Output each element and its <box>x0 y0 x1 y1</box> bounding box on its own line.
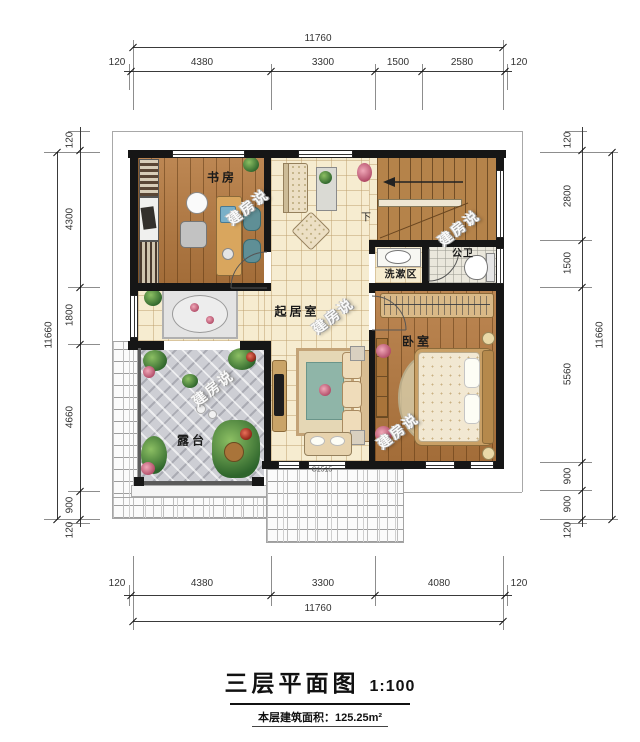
title-underline <box>230 703 410 705</box>
dim-text: 2800 <box>563 185 574 207</box>
ext-line <box>68 287 100 288</box>
dim-text: 900 <box>65 497 76 514</box>
stair-arrow-head <box>383 177 395 187</box>
room-label-living: 起居室 <box>274 303 319 320</box>
room-label-study: 书房 <box>207 169 237 186</box>
dim-line-bottom-total <box>133 621 503 622</box>
dim-line-left-segments <box>80 127 81 527</box>
stair-down-label: 下 <box>361 209 371 224</box>
dim-text: 11660 <box>44 321 55 348</box>
ext-line <box>129 64 130 90</box>
floor-plan-canvas: 书房 起居室 洗漱区 公卫 卧室 露台 下 C1515 建房说 建房说 建房说 … <box>0 0 640 742</box>
ext-line <box>133 40 134 110</box>
dim-line-left-total <box>57 152 58 519</box>
dim-text: 4080 <box>428 578 450 589</box>
ext-line <box>375 556 376 606</box>
dim-text: 120 <box>65 522 76 539</box>
ext-line <box>540 462 592 463</box>
window-code-label: C1515 <box>312 467 333 474</box>
dim-text: 120 <box>109 57 126 68</box>
dim-text: 1500 <box>387 57 409 68</box>
room-label-bath: 公卫 <box>452 245 474 260</box>
room-label-bedroom: 卧室 <box>402 333 432 350</box>
room-label-terrace: 露台 <box>177 432 207 449</box>
dim-text: 900 <box>563 468 574 485</box>
dim-line-bottom-segments <box>124 595 512 596</box>
study-door-arc <box>231 252 267 288</box>
dim-text: 900 <box>563 496 574 513</box>
dim-text: 11760 <box>304 603 331 614</box>
dim-text: 1800 <box>65 304 76 326</box>
dim-text: 4380 <box>191 57 213 68</box>
drawing-title: 三层平面图 <box>225 670 360 696</box>
dim-text: 5560 <box>563 363 574 385</box>
dim-text: 4380 <box>191 578 213 589</box>
area-note: 本层建筑面积：125.25m² <box>258 709 382 725</box>
ext-line <box>271 556 272 606</box>
dim-text: 3300 <box>312 57 334 68</box>
ext-line <box>44 152 100 153</box>
door-arcs-overlay <box>0 0 640 742</box>
dim-text: 3300 <box>312 578 334 589</box>
ext-line <box>503 40 504 110</box>
dim-text: 11760 <box>304 33 331 44</box>
ext-line <box>68 344 100 345</box>
dim-text: 120 <box>511 578 528 589</box>
dim-text: 120 <box>511 57 528 68</box>
dim-line-top-total <box>133 47 503 48</box>
dim-text: 2580 <box>451 57 473 68</box>
dim-text: 120 <box>563 522 574 539</box>
ext-line <box>540 490 592 491</box>
ext-line <box>540 287 592 288</box>
dim-line-right-total <box>612 152 613 519</box>
bedroom-door-arc <box>372 296 406 330</box>
dim-text: 120 <box>109 578 126 589</box>
ext-line <box>44 519 100 520</box>
dim-text: 4300 <box>65 208 76 230</box>
dim-line-top-segments <box>124 71 512 72</box>
dim-text: 1500 <box>563 252 574 274</box>
dim-text: 120 <box>65 132 76 149</box>
ext-line <box>540 240 592 241</box>
dim-text: 120 <box>563 132 574 149</box>
area-underline <box>252 726 388 727</box>
room-label-wash: 洗漱区 <box>385 266 418 281</box>
dim-line-right-segments <box>582 127 583 527</box>
dim-text: 11660 <box>595 321 606 348</box>
drawing-scale: 1:100 <box>370 678 416 695</box>
ext-line <box>68 491 100 492</box>
dim-text: 4660 <box>65 406 76 428</box>
title-block: 三层平面图1:100 <box>140 664 500 698</box>
